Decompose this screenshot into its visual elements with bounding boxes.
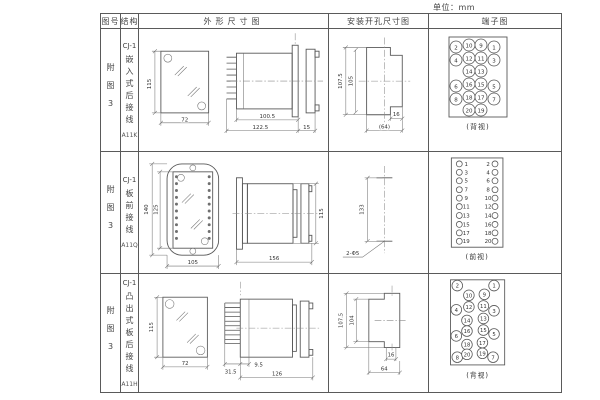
- terminal-pin-9: [456, 195, 462, 201]
- terminal-number: 3: [465, 170, 469, 176]
- structure-cell-row3: CJ-1 凸出式板后接线 A11H: [121, 274, 139, 392]
- install-hole-drawing-a11q: 133 2-Φ5: [329, 152, 428, 273]
- dim-cut-width: 64: [381, 367, 388, 373]
- terminal-number: 11: [478, 56, 485, 62]
- dim-cut-inner: 105: [349, 76, 355, 86]
- terminal-number: 8: [486, 188, 490, 194]
- terminal-pin-20: [492, 238, 498, 244]
- terminal-number: 12: [485, 205, 492, 211]
- mounting-hole: [196, 346, 205, 355]
- terminal-pin-1: [456, 161, 462, 167]
- terminal-number: 12: [466, 56, 473, 62]
- terminal-number: 14: [464, 319, 471, 325]
- relay-front-outline: [173, 172, 213, 248]
- terminal-number: 4: [454, 58, 458, 64]
- terminal-number: 11: [480, 304, 487, 310]
- front-view: 140 125 105: [144, 162, 220, 269]
- terminal-pin-19: [456, 238, 462, 244]
- view-caption: (背视): [466, 370, 489, 379]
- case-code-label: A11H: [121, 381, 137, 388]
- mounting-hole: [190, 165, 196, 171]
- terminal-number: 14: [466, 69, 473, 75]
- terminal-number: 1: [492, 45, 496, 51]
- terminal-number: 7: [491, 355, 494, 361]
- header-fig-no: 图号: [101, 14, 121, 29]
- fig-no-label: 附图3: [105, 306, 116, 361]
- terminal-number: 20: [485, 239, 492, 245]
- terminal-number: 13: [480, 317, 487, 323]
- mounting-hole: [164, 54, 172, 62]
- terminal-pin-17: [456, 230, 462, 236]
- plate-tab: [309, 303, 313, 309]
- dim-total-length: 122.5: [253, 125, 269, 131]
- dim-cut-slot: 16: [388, 353, 395, 359]
- dim-cut-width: (64): [379, 125, 390, 131]
- centerline: [375, 286, 408, 356]
- terminal-number: 17: [478, 95, 485, 101]
- terminal-number: 6: [454, 84, 458, 90]
- terminal-number: 10: [466, 293, 473, 299]
- header-install: 安装开孔尺寸图: [329, 14, 429, 29]
- terminal-pin-11: [456, 204, 462, 210]
- terminal-number: 15: [463, 222, 470, 228]
- terminal-number: 15: [478, 82, 485, 88]
- terminal-number: 2: [456, 284, 459, 290]
- drawing-sheet: 单位：mm 图号 结构 外形尺寸图 安装开孔尺寸图 端子图 附图3 CJ-1 嵌…: [0, 0, 600, 400]
- terminal-diagram-a11k: (背视) 2109141211314136161558181772019: [429, 29, 561, 151]
- terminal-number: 2: [486, 162, 489, 168]
- terminal-number: 9: [483, 292, 486, 298]
- terminal-number: 7: [492, 97, 496, 103]
- terminal-cell-row2: (前视) 1234567891011121314151617181920: [429, 152, 561, 274]
- terminal-number: 9: [465, 196, 469, 202]
- plate-tab: [309, 186, 312, 192]
- model-label: CJ-1: [123, 176, 137, 184]
- terminal-number: 18: [466, 95, 473, 101]
- dim-inner-height: 125: [154, 204, 160, 214]
- plate-tab: [309, 235, 312, 241]
- header-structure: 结构: [121, 14, 139, 29]
- terminal-number: 3: [492, 309, 495, 315]
- terminal-number: 20: [466, 108, 473, 114]
- terminal-number: 5: [492, 332, 495, 338]
- glass-hatch-marks: [182, 194, 203, 230]
- install-cell-row1: 107.5 105 16 (64): [329, 29, 429, 152]
- side-view: 100.5 122.5 15: [225, 33, 323, 132]
- mounting-hole: [190, 248, 196, 254]
- side-view: 156 115: [233, 178, 325, 265]
- view-caption: (背视): [466, 122, 489, 131]
- dim-cut-outer: 107.5: [338, 73, 344, 89]
- centerline: [231, 33, 324, 81]
- terminal-pin-4: [492, 169, 498, 175]
- terminal-diagram-a11h: (背视) 2110941211314136161551817820197: [429, 274, 561, 392]
- dim-front-width: 72: [181, 117, 188, 123]
- outline-cell-row1: 115 72 100.5 122.5: [139, 29, 329, 152]
- terminal-cell-row3: (背视) 2110941211314136161551817820197: [429, 274, 561, 392]
- terminal-number: 19: [463, 239, 470, 245]
- front-plate: [300, 301, 309, 357]
- dimension-line: [152, 49, 161, 115]
- terminal-number: 15: [480, 328, 487, 334]
- mounting-hole: [198, 102, 206, 110]
- terminal-number: 11: [463, 205, 470, 211]
- plate-tab: [309, 349, 313, 355]
- dim-flange: 15: [303, 125, 310, 131]
- dimension-line: [223, 344, 251, 367]
- fig-no-label: 附图3: [105, 185, 116, 240]
- terminal-number: 14: [485, 213, 492, 219]
- terminal-pin-3: [456, 169, 462, 175]
- terminal-number: 10: [485, 196, 492, 202]
- dim-cut-slot: 16: [393, 112, 400, 118]
- terminal-number: 9: [479, 43, 483, 49]
- relay-front-outline: [163, 297, 207, 357]
- hole-spec-label: 2-Φ5: [346, 251, 359, 257]
- terminal-pin-12: [492, 204, 498, 210]
- front-view: 115 72: [149, 295, 209, 369]
- terminal-number: 12: [466, 305, 473, 311]
- install-hole-drawing-a11h: 107.5 104 16 64: [329, 274, 428, 392]
- view-caption: (前视): [466, 252, 489, 261]
- glass-hatch-marks: [175, 66, 200, 97]
- terminal-number: 1: [492, 284, 495, 290]
- structure-cell-row1: CJ-1 嵌入式后接线 A11K: [121, 29, 139, 152]
- fig-no-cell-row2: 附图3: [101, 152, 121, 274]
- terminal-pin-15: [456, 221, 462, 227]
- dim-outer-height: 140: [144, 204, 150, 215]
- outline-drawing-a11k: 115 72 100.5 122.5: [139, 29, 328, 151]
- model-label: CJ-1: [123, 279, 137, 287]
- cover-screw: [201, 238, 208, 245]
- glass-hatch-marks: [176, 312, 198, 344]
- case-code-label: A11Q: [121, 242, 137, 249]
- terminal-number: 13: [478, 69, 485, 75]
- terminal-pin-7: [456, 187, 462, 193]
- terminal-pin-16: [492, 221, 498, 227]
- dimension-line: [154, 295, 163, 359]
- terminal-pin-6: [492, 178, 498, 184]
- outline-cell-row3: 115 72 31.5 9.5 126: [139, 274, 329, 392]
- terminal-number: 13: [463, 213, 470, 219]
- cover-screw: [177, 174, 184, 181]
- dimension-line: [365, 176, 383, 243]
- outline-drawing-a11q: 140 125 105 156: [139, 152, 328, 273]
- dim-body-length: 100.5: [259, 114, 275, 120]
- header-terminal: 端子图: [429, 14, 561, 29]
- terminal-number: 17: [463, 231, 470, 237]
- dim-front-height: 115: [147, 79, 153, 89]
- base-plate-outline: [167, 164, 219, 255]
- dim-hole-distance: 133: [360, 204, 366, 215]
- plate-tab: [315, 105, 319, 111]
- terminal-pin-2: [492, 161, 498, 167]
- terminal-number: 7: [465, 188, 468, 194]
- front-view: 115 72: [147, 49, 211, 126]
- fig-no-label: 附图3: [105, 63, 116, 118]
- dimension-line: [353, 297, 368, 343]
- terminal-number: 16: [485, 222, 492, 228]
- terminal-number: 4: [486, 170, 490, 176]
- install-cell-row3: 107.5 104 16 64: [329, 274, 429, 392]
- unit-label: 单位：mm: [418, 2, 490, 13]
- terminal-number: 18: [464, 343, 471, 349]
- dim-front-width: 72: [182, 361, 189, 367]
- terminal-pin-14: [492, 213, 498, 219]
- outline-drawing-a11h: 115 72 31.5 9.5 126: [139, 274, 328, 392]
- terminal-pin-18: [492, 230, 498, 236]
- install-hole-drawing-a11k: 107.5 105 16 (64): [329, 29, 428, 151]
- terminal-pin-5: [456, 178, 462, 184]
- terminal-cell-row1: (背视) 2109141211314136161558181772019: [429, 29, 561, 152]
- terminal-number: 8: [454, 97, 458, 103]
- terminal-number: 1: [465, 162, 468, 168]
- terminal-pin-10: [492, 195, 498, 201]
- dim-front-height: 115: [149, 322, 155, 332]
- terminal-number: 5: [492, 84, 496, 90]
- terminal-number: 2: [454, 45, 458, 51]
- dim-step: 9.5: [254, 362, 262, 368]
- terminal-pin-13: [456, 213, 462, 219]
- terminal-diagram-a11q: (前视) 1234567891011121314151617181920: [429, 152, 561, 273]
- fig-no-cell-row3: 附图3: [101, 274, 121, 392]
- dim-front-width: 105: [188, 260, 198, 266]
- dim-body-height: 115: [319, 208, 325, 218]
- terminal-pin-8: [492, 187, 498, 193]
- structure-cell-row2: CJ-1 板前接线 A11Q: [121, 152, 139, 274]
- dimension-table: 图号 结构 外形尺寸图 安装开孔尺寸图 端子图 附图3 CJ-1 嵌入式后接线 …: [100, 13, 562, 393]
- dim-cut-outer: 107.5: [339, 313, 345, 328]
- terminal-number: 20: [464, 352, 471, 358]
- terminal-number: 5: [465, 179, 468, 185]
- header-outline: 外形尺寸图: [139, 14, 329, 29]
- dim-pin-length: 31.5: [225, 370, 237, 376]
- dim-cut-inner: 104: [349, 315, 355, 326]
- terminal-number: 18: [485, 231, 492, 237]
- fig-no-cell-row1: 附图3: [101, 29, 121, 152]
- dim-body-length: 126: [272, 372, 283, 378]
- structure-label: 嵌入式后接线: [124, 55, 135, 127]
- terminal-pins: [225, 303, 240, 344]
- terminal-number: 19: [479, 351, 486, 357]
- structure-label: 凸出式板后接线: [124, 292, 135, 376]
- side-view: 31.5 9.5 126: [223, 282, 320, 381]
- dim-total-length: 156: [269, 256, 280, 262]
- terminal-number: 16: [466, 82, 473, 88]
- relay-front-outline: [161, 51, 209, 113]
- terminal-number: 17: [479, 341, 486, 347]
- terminal-number: 19: [478, 108, 485, 114]
- structure-label: 板前接线: [124, 189, 135, 237]
- plate-tab: [315, 51, 319, 57]
- terminal-number: 16: [464, 329, 471, 335]
- terminal-number: 10: [466, 43, 473, 49]
- case-code-label: A11K: [122, 132, 138, 139]
- terminal-pins: [227, 57, 237, 99]
- terminal-number: 6: [486, 179, 490, 185]
- terminal-number: 3: [492, 58, 496, 64]
- model-label: CJ-1: [123, 42, 137, 50]
- mounting-hole: [165, 300, 174, 309]
- install-cell-row2: 133 2-Φ5: [329, 152, 429, 274]
- outline-cell-row2: 140 125 105 156: [139, 152, 329, 274]
